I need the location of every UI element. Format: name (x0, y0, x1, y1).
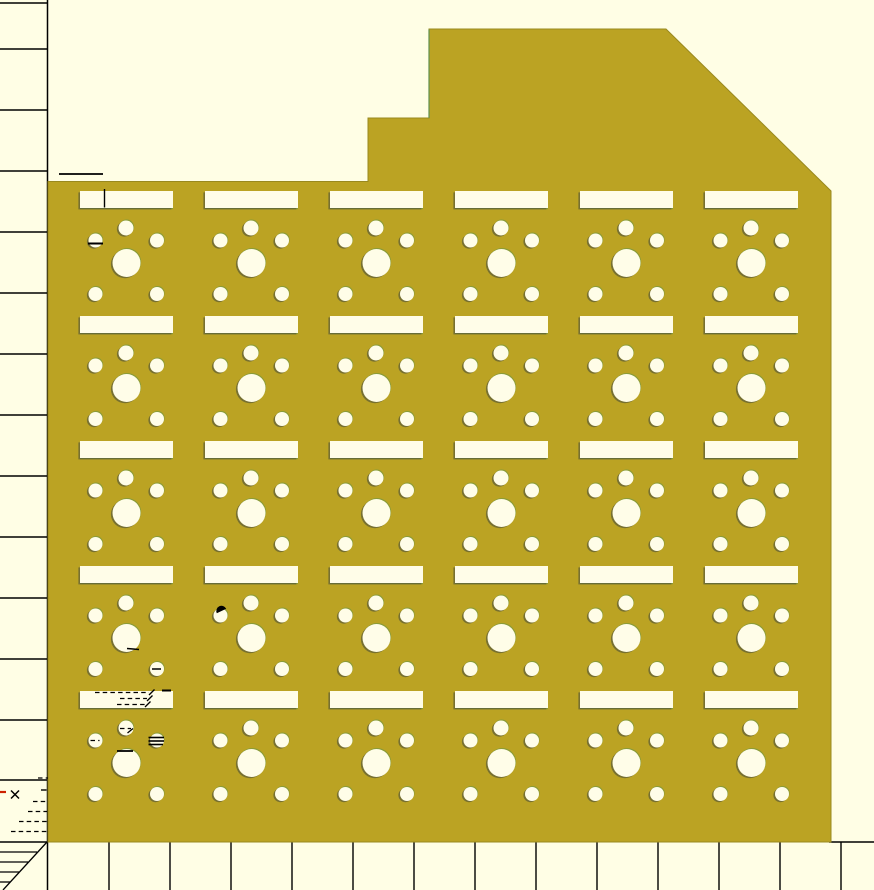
left-hole (339, 609, 353, 623)
center-hole (113, 249, 141, 277)
switch-slot (580, 566, 673, 583)
top-hole (369, 721, 384, 736)
top-hole (369, 596, 384, 611)
top-hole (619, 221, 634, 236)
right-hole (275, 609, 289, 623)
bottom-left-hole (214, 537, 228, 551)
engraving-line (127, 649, 139, 650)
right-hole (650, 734, 664, 748)
left-hole (714, 609, 728, 623)
bottom-left-hole (589, 287, 603, 301)
bottom-left-hole (214, 287, 228, 301)
top-hole (119, 471, 134, 486)
top-hole (744, 221, 759, 236)
center-hole (738, 249, 766, 277)
top-hole (494, 221, 509, 236)
left-hole (339, 234, 353, 248)
switch-slot (205, 566, 298, 583)
top-hole (369, 346, 384, 361)
center-hole (238, 374, 266, 402)
left-hole (714, 359, 728, 373)
bottom-right-hole (775, 787, 789, 801)
switch-slot (455, 566, 548, 583)
right-hole (400, 359, 414, 373)
switch-slot (705, 691, 798, 708)
left-hole (589, 609, 603, 623)
left-hole (464, 484, 478, 498)
bottom-right-hole (400, 537, 414, 551)
center-hole (613, 624, 641, 652)
right-hole (650, 484, 664, 498)
left-hole (589, 359, 603, 373)
top-hole (244, 346, 259, 361)
left-hole (714, 484, 728, 498)
bottom-left-hole (714, 287, 728, 301)
right-hole (275, 484, 289, 498)
switch-slot (580, 316, 673, 333)
switch-slot (330, 191, 423, 208)
switch-slot (455, 441, 548, 458)
bottom-right-hole (650, 287, 664, 301)
bottom-right-hole (150, 537, 164, 551)
right-hole (275, 734, 289, 748)
bottom-right-hole (275, 537, 289, 551)
switch-slot (205, 691, 298, 708)
bottom-right-hole (400, 662, 414, 676)
center-hole (238, 749, 266, 777)
bottom-left-hole (339, 287, 353, 301)
render-canvas (0, 0, 874, 890)
left-hole (464, 234, 478, 248)
switch-slot (705, 316, 798, 333)
bottom-right-hole (525, 287, 539, 301)
right-hole (775, 359, 789, 373)
left-hole (714, 234, 728, 248)
left-hole (589, 734, 603, 748)
right-hole (275, 234, 289, 248)
center-hole (738, 374, 766, 402)
left-hole (214, 234, 228, 248)
center-hole (363, 499, 391, 527)
right-hole (400, 609, 414, 623)
bottom-right-hole (775, 537, 789, 551)
left-hole (339, 734, 353, 748)
right-hole (775, 734, 789, 748)
switch-slot (205, 441, 298, 458)
right-hole (650, 359, 664, 373)
bottom-left-hole (89, 787, 103, 801)
top-hole (744, 346, 759, 361)
center-hole (613, 374, 641, 402)
right-hole (650, 234, 664, 248)
bottom-left-hole (714, 537, 728, 551)
top-hole (494, 471, 509, 486)
left-hole (89, 234, 103, 248)
center-hole (113, 499, 141, 527)
switch-slot (330, 441, 423, 458)
bottom-left-hole (464, 662, 478, 676)
center-hole (238, 499, 266, 527)
switch-slot (705, 191, 798, 208)
left-hole (339, 359, 353, 373)
right-hole (525, 234, 539, 248)
center-hole (363, 749, 391, 777)
top-hole (244, 471, 259, 486)
top-hole (119, 346, 134, 361)
bottom-right-hole (525, 412, 539, 426)
right-hole (275, 359, 289, 373)
bottom-left-hole (464, 412, 478, 426)
top-hole (244, 596, 259, 611)
switch-slot (80, 316, 173, 333)
bottom-right-hole (775, 662, 789, 676)
top-hole (244, 221, 259, 236)
switch-slot (80, 441, 173, 458)
center-hole (113, 749, 141, 777)
bottom-left-hole (89, 662, 103, 676)
bottom-right-hole (525, 537, 539, 551)
bottom-right-hole (150, 412, 164, 426)
switch-slot (455, 316, 548, 333)
switch-slot (205, 191, 298, 208)
center-hole (363, 624, 391, 652)
right-hole (150, 484, 164, 498)
switch-slot (330, 566, 423, 583)
right-hole (650, 609, 664, 623)
left-hole (214, 484, 228, 498)
switch-slot (705, 566, 798, 583)
center-hole (613, 749, 641, 777)
top-hole (119, 221, 134, 236)
bottom-left-hole (339, 537, 353, 551)
center-hole (613, 499, 641, 527)
bottom-right-hole (650, 662, 664, 676)
left-hole (464, 609, 478, 623)
center-hole (488, 749, 516, 777)
cad-viewport[interactable] (0, 0, 874, 890)
bottom-right-hole (400, 412, 414, 426)
left-hole (214, 359, 228, 373)
right-hole (150, 359, 164, 373)
right-hole (400, 484, 414, 498)
switch-slot (80, 691, 173, 708)
bottom-left-hole (214, 662, 228, 676)
right-hole (400, 234, 414, 248)
switch-slot (330, 691, 423, 708)
bottom-left-hole (89, 287, 103, 301)
left-hole (89, 609, 103, 623)
left-hole (339, 484, 353, 498)
bottom-left-hole (339, 787, 353, 801)
bottom-left-hole (89, 412, 103, 426)
top-hole (119, 596, 134, 611)
left-hole (464, 359, 478, 373)
right-hole (775, 484, 789, 498)
top-hole (244, 721, 259, 736)
center-hole (488, 499, 516, 527)
top-hole (619, 471, 634, 486)
bottom-right-hole (150, 287, 164, 301)
right-hole (525, 484, 539, 498)
left-hole (464, 734, 478, 748)
bottom-right-hole (650, 537, 664, 551)
right-hole (775, 609, 789, 623)
bottom-left-hole (464, 537, 478, 551)
center-hole (738, 499, 766, 527)
top-hole (369, 221, 384, 236)
center-hole (738, 749, 766, 777)
left-hole (214, 734, 228, 748)
left-hole (89, 359, 103, 373)
bottom-left-hole (339, 412, 353, 426)
right-hole (150, 609, 164, 623)
center-hole (738, 624, 766, 652)
bottom-left-hole (589, 662, 603, 676)
bottom-left-hole (589, 787, 603, 801)
bottom-right-hole (775, 412, 789, 426)
bottom-right-hole (650, 412, 664, 426)
right-hole (525, 734, 539, 748)
top-hole (494, 721, 509, 736)
bottom-left-hole (589, 412, 603, 426)
center-hole (113, 374, 141, 402)
center-hole (488, 624, 516, 652)
bottom-left-hole (339, 662, 353, 676)
switch-slot (580, 691, 673, 708)
bottom-right-hole (400, 287, 414, 301)
bottom-left-hole (714, 662, 728, 676)
bottom-left-hole (464, 787, 478, 801)
center-hole (613, 249, 641, 277)
right-hole (525, 609, 539, 623)
top-hole (494, 346, 509, 361)
left-hole (589, 484, 603, 498)
bottom-left-hole (589, 537, 603, 551)
switch-slot (580, 191, 673, 208)
top-hole (619, 721, 634, 736)
center-hole (488, 249, 516, 277)
bottom-left-hole (464, 287, 478, 301)
switch-slot (80, 566, 173, 583)
switch-slot (705, 441, 798, 458)
top-hole (494, 596, 509, 611)
center-hole (113, 624, 141, 652)
center-hole (488, 374, 516, 402)
bottom-left-hole (89, 537, 103, 551)
top-hole (619, 346, 634, 361)
right-hole (525, 359, 539, 373)
top-hole (744, 596, 759, 611)
bottom-right-hole (525, 787, 539, 801)
switch-slot (580, 441, 673, 458)
switch-slot (205, 316, 298, 333)
center-hole (238, 249, 266, 277)
right-hole (400, 734, 414, 748)
left-hole (589, 234, 603, 248)
top-hole (744, 721, 759, 736)
center-hole (363, 249, 391, 277)
bottom-right-hole (525, 662, 539, 676)
bottom-right-hole (275, 287, 289, 301)
switch-slot (80, 191, 173, 208)
bottom-right-hole (275, 662, 289, 676)
bottom-left-hole (714, 412, 728, 426)
center-hole (363, 374, 391, 402)
bottom-right-hole (275, 787, 289, 801)
top-hole (369, 471, 384, 486)
right-hole (775, 234, 789, 248)
switch-slot (330, 316, 423, 333)
bottom-left-hole (214, 412, 228, 426)
bottom-right-hole (650, 787, 664, 801)
bottom-right-hole (150, 787, 164, 801)
switch-slot (455, 691, 548, 708)
top-hole (619, 596, 634, 611)
bottom-left-hole (714, 787, 728, 801)
left-hole (714, 734, 728, 748)
bottom-right-hole (400, 787, 414, 801)
right-hole (150, 234, 164, 248)
bottom-right-hole (775, 287, 789, 301)
bottom-left-hole (214, 787, 228, 801)
left-hole (89, 484, 103, 498)
center-hole (238, 624, 266, 652)
top-hole (744, 471, 759, 486)
switch-slot (455, 191, 548, 208)
bottom-right-hole (275, 412, 289, 426)
